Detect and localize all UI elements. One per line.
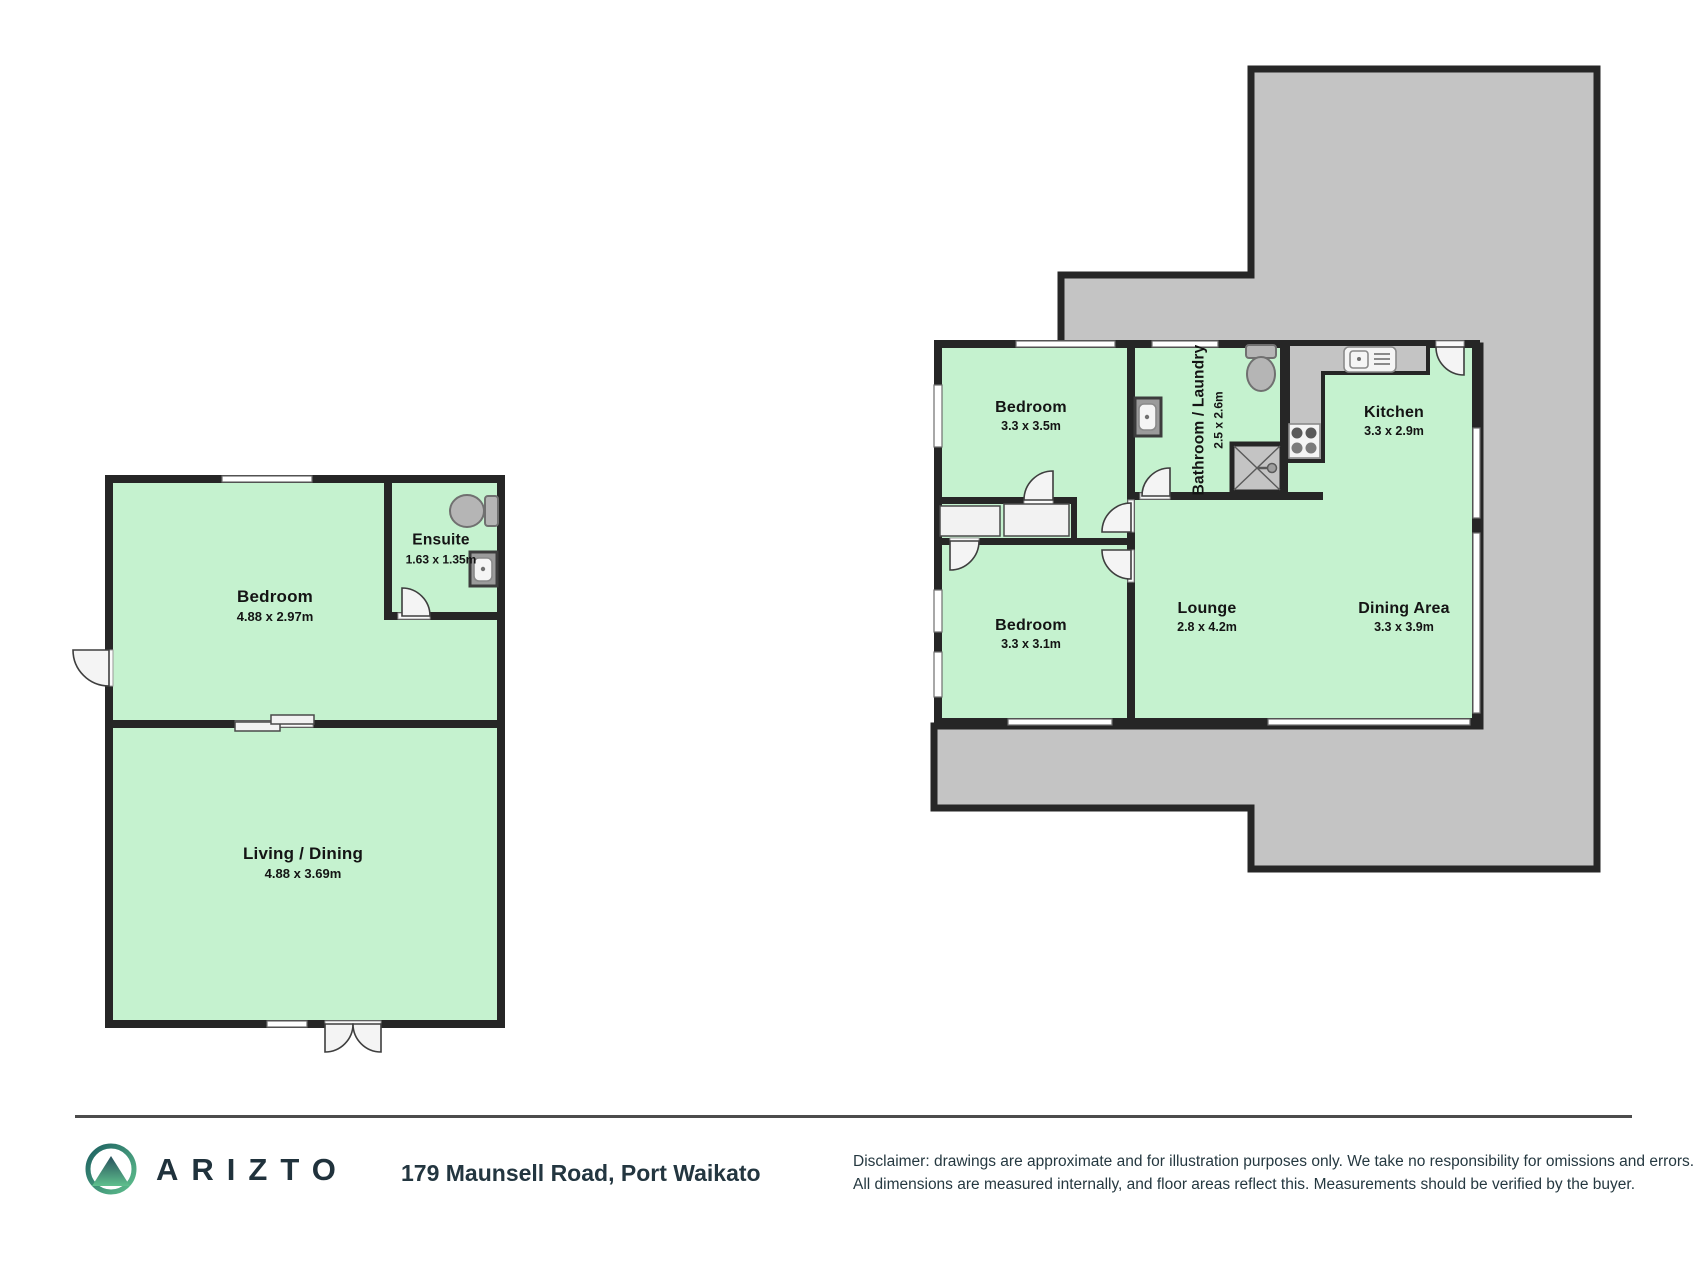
kitchen-sink-icon (1344, 347, 1396, 372)
room-label-living-dining: Living / Dining 4.88 x 3.69m (243, 844, 363, 882)
room-label-bathroom-laundry: Bathroom / Laundry 2.5 x 2.6m (1191, 345, 1226, 496)
main-dwelling-plan (934, 69, 1597, 869)
property-address: 179 Maunsell Road, Port Waikato (401, 1160, 761, 1187)
room-name: Bedroom (995, 616, 1067, 635)
room-dims: 2.5 x 2.6m (1211, 345, 1225, 496)
room-dims: 3.3 x 3.1m (995, 637, 1067, 652)
wardrobe-icon (940, 504, 1069, 536)
stove-icon (1289, 424, 1320, 458)
room-dims: 3.3 x 3.9m (1358, 620, 1449, 635)
room-name: Lounge (1177, 599, 1237, 618)
room-dims: 4.88 x 2.97m (237, 609, 314, 625)
room-name: Living / Dining (243, 844, 363, 864)
room-name: Bedroom (237, 587, 314, 607)
shower-icon (1232, 444, 1282, 492)
floorplan-drawing (0, 0, 1707, 1280)
disclaimer-line-2: All dimensions are measured internally, … (853, 1173, 1694, 1196)
exterior-door-swing (73, 650, 109, 686)
room-label-ensuite: Ensuite 1.63 x 1.35m (406, 532, 477, 567)
room-name: Bedroom (995, 398, 1067, 417)
brand-wordmark: ARIZTO (156, 1152, 349, 1188)
room-label-lounge: Lounge 2.8 x 4.2m (1177, 599, 1237, 635)
bathroom-basin-icon (1135, 398, 1161, 436)
room-label-kitchen: Kitchen 3.3 x 2.9m (1364, 403, 1424, 439)
room-name: Kitchen (1364, 403, 1424, 422)
disclaimer-text: Disclaimer: drawings are approximate and… (853, 1150, 1694, 1197)
french-door-right-swing (353, 1024, 381, 1052)
disclaimer-line-1: Disclaimer: drawings are approximate and… (853, 1150, 1694, 1173)
room-name: Dining Area (1358, 599, 1449, 618)
room-dims: 1.63 x 1.35m (406, 552, 477, 566)
toilet-icon (1246, 345, 1276, 391)
room-label-bedroom-1: Bedroom 3.3 x 3.5m (995, 398, 1067, 434)
arizto-logo-icon (88, 1146, 134, 1192)
footer-divider (75, 1115, 1632, 1118)
room-label-dining-area: Dining Area 3.3 x 3.9m (1358, 599, 1449, 635)
room-dims: 3.3 x 3.5m (995, 419, 1067, 434)
french-door-left-swing (325, 1024, 353, 1052)
floorplan-page: Bedroom 4.88 x 2.97m Ensuite 1.63 x 1.35… (0, 0, 1707, 1280)
room-dims: 4.88 x 3.69m (243, 866, 363, 882)
room-name: Ensuite (406, 532, 477, 551)
ensuite-toilet-icon (450, 495, 498, 527)
room-label-bedroom-minor: Bedroom 4.88 x 2.97m (237, 587, 314, 625)
room-label-bedroom-2: Bedroom 3.3 x 3.1m (995, 616, 1067, 652)
room-dims: 3.3 x 2.9m (1364, 424, 1424, 439)
room-dims: 2.8 x 4.2m (1177, 620, 1237, 635)
room-name: Bathroom / Laundry (1191, 345, 1210, 496)
